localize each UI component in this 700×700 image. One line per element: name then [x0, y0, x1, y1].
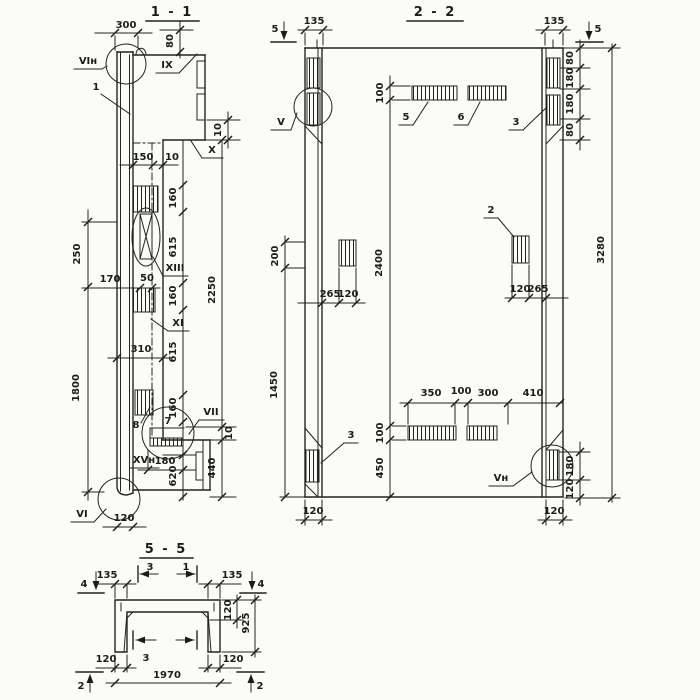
svg-text:120: 120	[96, 654, 117, 665]
embedded-plate-hatched	[339, 240, 356, 266]
svg-text:100: 100	[375, 83, 386, 104]
svg-text:2400: 2400	[374, 249, 385, 277]
label-XIII: XIII	[166, 263, 185, 274]
label-VI: VI	[76, 509, 87, 520]
svg-text:100: 100	[451, 386, 472, 397]
cut-marker-3-bottom: 3	[133, 631, 156, 664]
cut-marker-1-bottom	[176, 631, 197, 649]
svg-text:135: 135	[544, 16, 565, 27]
svg-text:80: 80	[565, 123, 576, 137]
corner-angle-hatched	[150, 438, 183, 446]
dim-120-265-right: 120 265	[505, 265, 568, 302]
rib-plate-hatched	[307, 58, 320, 88]
svg-text:180: 180	[155, 456, 176, 467]
dim-135-left-55: 135	[96, 570, 136, 598]
svg-text:1450: 1450	[269, 371, 280, 399]
svg-text:300: 300	[478, 388, 499, 399]
rib-plate-hatched	[546, 450, 559, 480]
dim-chain-right-top: 80 180 180 80	[560, 40, 620, 150]
cut-marker-2-left: 2	[76, 672, 103, 692]
svg-text:120: 120	[114, 513, 135, 524]
dim-120-bottom-left-55: 120	[96, 654, 136, 672]
dim-overall-right: 2250 10 440	[186, 136, 236, 501]
dim-265-120-left: 265 120	[298, 268, 365, 307]
svg-text:4: 4	[81, 579, 88, 590]
embedded-plate	[197, 94, 205, 120]
label-V-n: Vн	[494, 473, 509, 484]
svg-text:5: 5	[272, 24, 279, 35]
pos-7: 7	[165, 416, 172, 427]
embedded-bar-hatched	[468, 86, 506, 100]
label-XI: XI	[172, 318, 183, 329]
cut-marker-4-right: 4	[240, 572, 266, 593]
detail-circle-VIn	[106, 44, 146, 84]
svg-text:200: 200	[270, 246, 281, 267]
svg-text:265: 265	[528, 284, 549, 295]
dim-135-left: 135	[298, 16, 332, 45]
embedded-bar-hatched	[412, 86, 457, 100]
pos-1: 1	[93, 82, 100, 93]
svg-text:160: 160	[168, 188, 179, 209]
section-title: 2 - 2	[414, 5, 457, 20]
label-V: V	[277, 117, 285, 128]
svg-text:410: 410	[523, 388, 544, 399]
label-VII: VII	[203, 407, 218, 418]
svg-text:5: 5	[595, 24, 602, 35]
label-VI-n: VIн	[79, 56, 97, 67]
drawing-sheet: 1 - 1 300	[0, 0, 700, 700]
dim-row-bottom: 350 100 300 410	[400, 386, 564, 424]
pos-6: 6	[458, 112, 465, 123]
cut-marker-5-right: 5	[576, 22, 603, 42]
dim-300: 300	[95, 20, 152, 50]
embedded-bar-hatched	[467, 426, 497, 440]
rib-plate-hatched	[547, 58, 560, 88]
svg-text:180: 180	[565, 456, 576, 477]
svg-text:615: 615	[168, 342, 179, 363]
svg-text:135: 135	[97, 570, 118, 581]
svg-text:120: 120	[223, 600, 234, 621]
structural-sections-drawing: 1 - 1 300	[0, 0, 700, 700]
svg-text:135: 135	[304, 16, 325, 27]
rib-plate-hatched	[547, 95, 560, 125]
pos-5: 5	[403, 112, 410, 123]
svg-text:10: 10	[213, 123, 224, 137]
svg-text:350: 350	[421, 388, 442, 399]
dim-chain-middle: 100 2400 100 450	[374, 76, 410, 501]
svg-text:120: 120	[565, 479, 576, 500]
channel-outline	[115, 600, 220, 652]
svg-text:2250: 2250	[207, 276, 218, 304]
section-title: 5 - 5	[145, 542, 188, 557]
cut-marker-5-left: 5	[271, 22, 296, 42]
embedded-plate-hatched	[512, 236, 529, 263]
svg-text:2: 2	[78, 681, 85, 692]
svg-text:120: 120	[303, 506, 324, 517]
dim-chain-left: 250 1800	[71, 210, 117, 500]
svg-text:1970: 1970	[153, 670, 181, 681]
dim-120-bottom: 120	[103, 513, 146, 531]
svg-text:10: 10	[165, 152, 179, 163]
svg-text:615: 615	[168, 237, 179, 258]
svg-text:3: 3	[147, 562, 154, 573]
embedded-bar-hatched	[408, 426, 456, 440]
svg-text:160: 160	[168, 286, 179, 307]
pos-3-bottom: 3	[348, 430, 355, 441]
svg-text:50: 50	[140, 273, 154, 284]
svg-text:925: 925	[241, 613, 252, 634]
rib-plate-hatched	[307, 93, 320, 125]
cut-marker-1-top: 1	[177, 562, 197, 582]
section-5-5-view: 5 - 5 4 4 3 1 3	[76, 542, 266, 692]
svg-text:4: 4	[258, 579, 265, 590]
pos-3-top: 3	[513, 117, 520, 128]
svg-text:100: 100	[375, 423, 386, 444]
svg-text:120: 120	[338, 289, 359, 300]
svg-text:300: 300	[116, 20, 137, 31]
label-XV-n: XVн	[133, 455, 155, 466]
dim-chain-right-bottom: 180 120	[560, 442, 590, 505]
svg-text:310: 310	[131, 344, 152, 355]
svg-text:620: 620	[168, 466, 179, 487]
section-title: 1 - 1	[151, 5, 194, 20]
svg-text:3: 3	[143, 653, 150, 664]
svg-text:250: 250	[72, 244, 83, 265]
pos-8: 8	[133, 420, 140, 431]
svg-text:180: 180	[565, 68, 576, 89]
dim-chain-left-22: 200 1450	[269, 236, 305, 501]
rib-plate-hatched	[306, 450, 319, 482]
svg-text:1: 1	[183, 562, 190, 573]
svg-text:135: 135	[222, 570, 243, 581]
dim-120-bottom-left: 120	[296, 500, 332, 525]
dim-1970: 1970	[106, 670, 231, 687]
svg-text:170: 170	[100, 274, 121, 285]
dim-120-bottom-right: 120	[538, 500, 572, 525]
svg-text:1800: 1800	[71, 374, 82, 402]
svg-text:80: 80	[165, 34, 176, 48]
svg-text:180: 180	[565, 94, 576, 115]
cut-marker-2-right: 2	[237, 672, 264, 692]
section-1-1-view: 1 - 1 300	[71, 5, 240, 531]
dim-150-10: 150 10	[120, 152, 179, 169]
label-IX: IX	[161, 60, 173, 71]
label-X: X	[208, 145, 216, 156]
svg-text:120: 120	[223, 654, 244, 665]
svg-text:150: 150	[133, 152, 154, 163]
embedded-plate	[197, 61, 205, 88]
svg-text:120: 120	[544, 506, 565, 517]
svg-text:80: 80	[565, 51, 576, 65]
dim-120-bottom-right-55: 120	[199, 654, 243, 672]
pos-2: 2	[488, 205, 495, 216]
cut-marker-3-top: 3	[138, 562, 158, 582]
embedded-plate	[196, 452, 203, 480]
dim-80: 80	[160, 22, 193, 58]
svg-text:3280: 3280	[596, 236, 607, 264]
section-2-2-view: 2 - 2 5 5	[269, 5, 620, 525]
dim-135-right-55: 135	[199, 570, 242, 598]
svg-text:2: 2	[257, 681, 264, 692]
svg-text:10: 10	[224, 426, 235, 440]
lifting-loop	[136, 48, 146, 55]
svg-text:440: 440	[207, 458, 218, 479]
svg-text:450: 450	[375, 458, 386, 479]
embedded-plate-hatched	[135, 390, 153, 415]
